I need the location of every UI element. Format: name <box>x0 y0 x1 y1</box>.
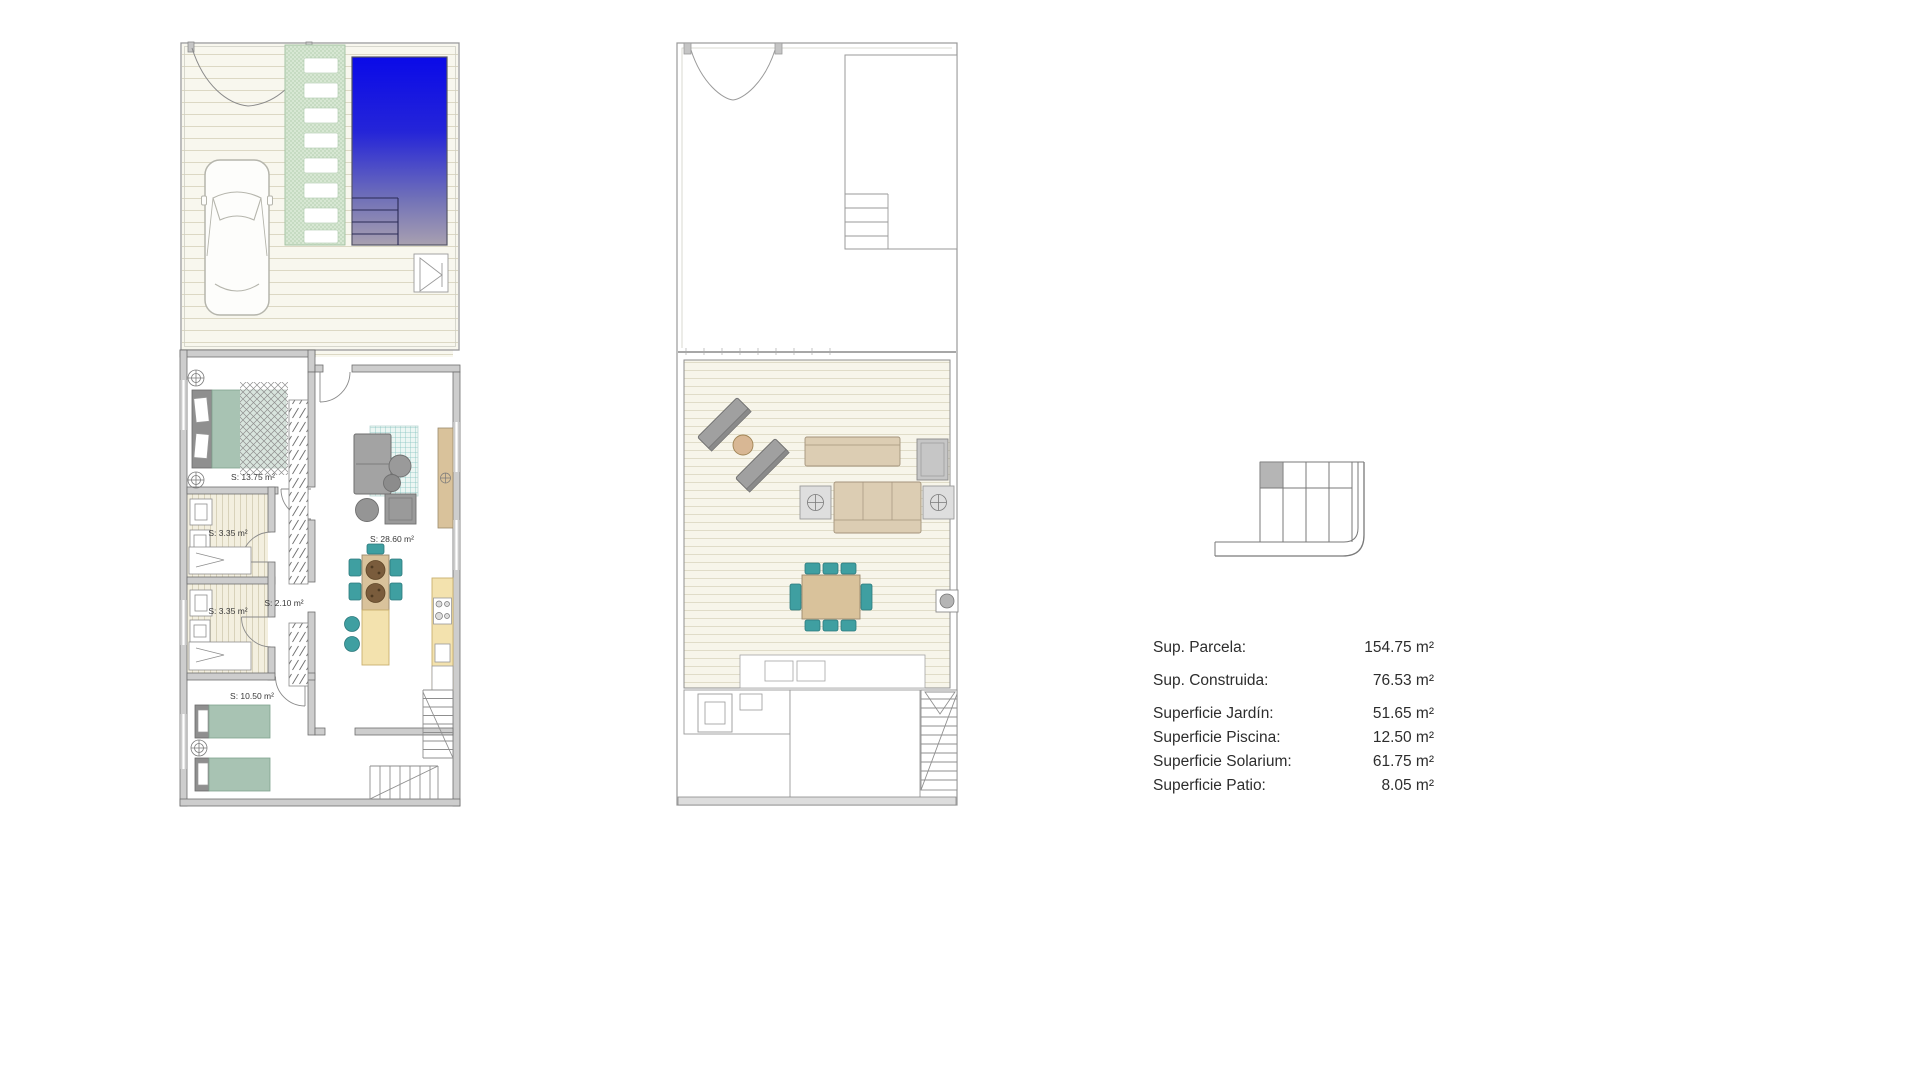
side-table <box>389 455 411 477</box>
room-area-label: S: 13.75 m² <box>231 472 275 482</box>
stool <box>345 617 360 632</box>
summary-value: 12.50 m² <box>1373 726 1434 750</box>
pouf <box>356 499 379 522</box>
surface-summary-table: Sup. Parcela: 154.75 m² Sup. Construida:… <box>1153 636 1434 798</box>
sofa <box>834 482 921 533</box>
garden-path <box>285 45 345 245</box>
summary-label: Sup. Construida: <box>1153 669 1268 693</box>
light-symbol <box>441 473 451 483</box>
room-area-label: S: 3.35 m² <box>208 528 247 538</box>
summary-label: Sup. Parcela: <box>1153 636 1246 660</box>
summary-row: Superficie Jardín: 51.65 m² <box>1153 702 1434 726</box>
summary-label: Superficie Jardín: <box>1153 702 1274 726</box>
bottom-wall <box>678 797 956 805</box>
living-furniture <box>354 426 453 528</box>
summary-label: Superficie Piscina: <box>1153 726 1281 750</box>
armchair <box>385 494 416 524</box>
room-area-label: S: 2.10 m² <box>264 598 303 608</box>
summary-row: Sup. Construida: 76.53 m² <box>1153 669 1434 693</box>
solarium-floor-plan <box>676 42 958 806</box>
summary-label: Superficie Patio: <box>1153 774 1266 798</box>
side-table <box>384 475 401 492</box>
summary-value: 154.75 m² <box>1364 636 1434 660</box>
car <box>202 160 273 315</box>
wardrobe-hatch <box>289 400 308 686</box>
sofa <box>805 437 900 466</box>
floor-plan-sheet: S: 13.75 m² S: 3.35 m² S: 2.10 m² S: 3.3… <box>0 0 1920 1080</box>
summary-row: Sup. Parcela: 154.75 m² <box>1153 636 1434 660</box>
summary-value: 61.75 m² <box>1373 750 1434 774</box>
single-bed <box>209 758 270 791</box>
summary-row: Superficie Piscina: 12.50 m² <box>1153 726 1434 750</box>
pillow <box>194 397 209 422</box>
summary-row: Superficie Solarium: 61.75 m² <box>1153 750 1434 774</box>
ground-floor-plan: S: 13.75 m² S: 3.35 m² S: 2.10 m² S: 3.3… <box>180 42 460 806</box>
pool <box>352 57 447 245</box>
stool <box>345 637 360 652</box>
room-area-label: S: 10.50 m² <box>230 691 274 701</box>
stair-void <box>845 55 957 249</box>
bbq <box>936 590 958 612</box>
kitchen-island <box>362 610 389 665</box>
armchair <box>917 439 948 480</box>
room-area-label: S: 28.60 m² <box>370 534 414 544</box>
summary-label: Superficie Solarium: <box>1153 750 1292 774</box>
roof-stair <box>921 690 957 790</box>
drain-symbol <box>414 254 448 292</box>
summary-row: Superficie Patio: 8.05 m² <box>1153 774 1434 798</box>
room-area-label: S: 3.35 m² <box>208 606 247 616</box>
round-table <box>733 435 753 455</box>
summary-value: 51.65 m² <box>1373 702 1434 726</box>
staircase-section-detail <box>1213 455 1373 567</box>
dining-table <box>802 575 860 619</box>
stove <box>434 598 452 624</box>
light-symbol <box>191 740 207 756</box>
summary-value: 76.53 m² <box>1373 669 1434 693</box>
fridge <box>432 666 453 690</box>
summary-value: 8.05 m² <box>1381 774 1434 798</box>
single-bed <box>209 705 270 738</box>
summer-kitchen <box>740 655 925 688</box>
bed-throw <box>240 382 288 475</box>
sink <box>435 644 450 662</box>
pillow <box>194 434 209 459</box>
